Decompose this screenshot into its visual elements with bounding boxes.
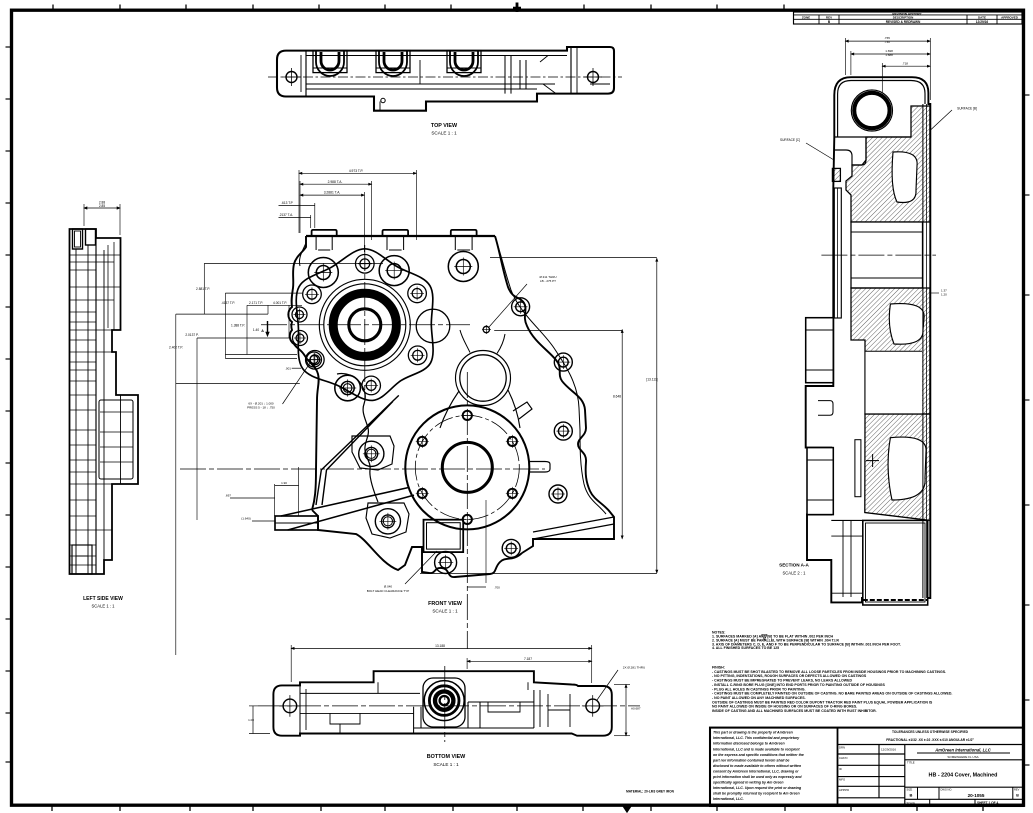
- svg-text:This part or drawing is the pr: This part or drawing is the property of …: [713, 731, 793, 735]
- svg-text:REV: REV: [1014, 788, 1020, 792]
- svg-text:.718: .718: [902, 62, 908, 66]
- svg-text:B: B: [1016, 794, 1019, 798]
- svg-text:12/29/2016: 12/29/2016: [881, 748, 896, 752]
- svg-text:4. ALL FINISHED SURFACES TO BE: 4. ALL FINISHED SURFACES TO BE 125: [712, 646, 779, 650]
- svg-text:[13.111]: [13.111]: [646, 378, 658, 382]
- svg-text:TITLE: TITLE: [907, 761, 915, 765]
- svg-text:4.973 T.P.: 4.973 T.P.: [349, 169, 364, 173]
- svg-text:Ø.040: Ø.040: [384, 584, 393, 588]
- svg-text:International, LLC. This confi: International, LLC. This confidential an…: [713, 736, 800, 740]
- svg-text:8.648: 8.648: [613, 395, 621, 399]
- svg-text:1.20: 1.20: [941, 293, 947, 297]
- svg-text:1.90: 1.90: [281, 481, 287, 485]
- svg-text:HB - 2204 Cover, Machined: HB - 2204 Cover, Machined: [929, 773, 998, 779]
- svg-text:TOP VIEW: TOP VIEW: [431, 123, 458, 129]
- svg-text:1.688: 1.688: [885, 53, 893, 57]
- svg-text:print information shall be use: print information shall be used only as …: [712, 775, 802, 779]
- svg-text:International, LLC.: International, LLC.: [713, 797, 744, 801]
- svg-text:1.40: 1.40: [253, 328, 259, 332]
- svg-text:SCALE 1 : 1: SCALE 1 : 1: [432, 609, 458, 614]
- svg-text:SCALE 2 : 1: SCALE 2 : 1: [782, 571, 806, 576]
- svg-text:REVISED & REDRAWN: REVISED & REDRAWN: [886, 20, 921, 24]
- svg-text:DWG NO.: DWG NO.: [941, 788, 953, 792]
- svg-text:on the express and specific co: on the express and specific conditions t…: [713, 753, 804, 757]
- svg-text:.4137 T.P.: .4137 T.P.: [221, 301, 235, 305]
- svg-text:SCALE 1 : 1: SCALE 1 : 1: [431, 131, 457, 136]
- svg-text:2.171 T.P.: 2.171 T.P.: [249, 301, 263, 305]
- svg-text:20-1055: 20-1055: [968, 793, 985, 798]
- svg-text:2.0137 P.: 2.0137 P.: [185, 333, 198, 337]
- svg-text:TOLERANCES UNLESS OTHERWISE SP: TOLERANCES UNLESS OTHERWISE SPECIFIED: [892, 730, 969, 734]
- svg-text:1.388 T.P.: 1.388 T.P.: [231, 324, 245, 328]
- svg-text:CHK'D: CHK'D: [839, 756, 847, 760]
- svg-text:SECTION A-A: SECTION A-A: [779, 563, 809, 568]
- svg-text:FRACTIONAL ±1/32 .XX ±.02: FRACTIONAL ±1/32 .XX ±.02 .XXX ±.010 ANG…: [886, 738, 974, 742]
- svg-text:SURFACE [B]: SURFACE [B]: [957, 107, 977, 111]
- svg-text:ID: ID: [839, 767, 842, 771]
- svg-text:information disclosed belongs: information disclosed belongs to AmGreen: [713, 742, 785, 746]
- svg-text:ZONE: ZONE: [802, 16, 810, 20]
- svg-text:SHEET 1 OF 4: SHEET 1 OF 4: [977, 801, 998, 805]
- svg-text:.613 T.P: .613 T.P: [281, 201, 293, 205]
- svg-text:BOTTOM VIEW: BOTTOM VIEW: [427, 754, 466, 760]
- svg-text:DESCRIPTION: DESCRIPTION: [893, 16, 914, 20]
- svg-text:AmGreen International, LLC: AmGreen International, LLC: [934, 748, 992, 753]
- svg-text:part nor information contained: part nor information contained herein sh…: [712, 758, 789, 762]
- svg-text:SCALE 1 : 1: SCALE 1 : 1: [433, 762, 459, 767]
- svg-text:2.85: 2.85: [99, 204, 105, 208]
- svg-text:DATE: DATE: [978, 16, 986, 20]
- svg-text:B: B: [910, 793, 913, 798]
- svg-text:7.187: 7.187: [524, 657, 532, 661]
- svg-text:(1.640): (1.640): [241, 517, 251, 521]
- svg-text:International, LLC. Upon reque: International, LLC. Upon request the pri…: [713, 786, 802, 790]
- svg-text:LEFT SIDE VIEW: LEFT SIDE VIEW: [83, 596, 123, 602]
- svg-text:A: A: [261, 329, 264, 333]
- svg-text:APPR'D: APPR'D: [839, 788, 849, 792]
- svg-text:.697: .697: [225, 494, 231, 498]
- svg-text:PRESS 5 - 18 ↓ .750: PRESS 5 - 18 ↓ .750: [247, 406, 275, 410]
- svg-text:SCALE: SCALE: [907, 801, 916, 805]
- svg-text:SURFACE [C]: SURFACE [C]: [780, 138, 800, 142]
- svg-text:specifically agreed in writing: specifically agreed in writing by Am Gre…: [713, 781, 783, 785]
- svg-text:REV: REV: [826, 16, 832, 20]
- svg-text:2.988 T.A.: 2.988 T.A.: [328, 180, 343, 184]
- svg-text:4.001 T.P.: 4.001 T.P.: [273, 301, 287, 305]
- svg-text:LB - 275 PT: LB - 275 PT: [540, 279, 556, 283]
- svg-text:APPROVED: APPROVED: [1001, 16, 1019, 20]
- svg-text:.700: .700: [494, 585, 500, 589]
- svg-text:2.881 T.P.: 2.881 T.P.: [196, 287, 210, 291]
- svg-text:.001: .001: [285, 367, 291, 371]
- svg-text:International, LLC and is made: International, LLC and is made available…: [713, 747, 800, 751]
- svg-text:MATERIAL: 20-LM3 GREY IRON: MATERIAL: 20-LM3 GREY IRON: [626, 790, 675, 794]
- svg-text:consent by AmGreen Internation: consent by AmGreen International, LLC, d…: [713, 769, 799, 773]
- svg-text:MFG: MFG: [839, 778, 845, 782]
- svg-text:shall be promptly returned by: shall be promptly returned by recipient …: [713, 792, 800, 796]
- svg-text:1.00: 1.00: [248, 718, 254, 722]
- svg-text:A0.687: A0.687: [631, 707, 641, 711]
- svg-text:SCALE 1 : 1: SCALE 1 : 1: [91, 604, 115, 609]
- svg-text:.740: .740: [884, 40, 890, 44]
- svg-text:disclosed to made available to: disclosed to made available to others wi…: [713, 764, 801, 768]
- svg-text:12/29/16: 12/29/16: [976, 20, 989, 24]
- svg-text:INSIDE OF CASTING AND ALL MACH: INSIDE OF CASTING AND ALL MACHINED SURFA…: [712, 709, 877, 713]
- svg-text:FRONT VIEW: FRONT VIEW: [428, 601, 463, 607]
- svg-text:BOLT HEAD CLEARANCE TYP: BOLT HEAD CLEARANCE TYP: [367, 589, 410, 593]
- svg-text:13.188: 13.188: [435, 644, 445, 648]
- svg-text:SIZE: SIZE: [907, 788, 913, 792]
- svg-text:3.2881 T.A.: 3.2881 T.A.: [324, 191, 341, 195]
- svg-text:Ø.311 THRU: Ø.311 THRU: [539, 275, 556, 279]
- svg-text:2X Ø.281 THRU: 2X Ø.281 THRU: [623, 665, 645, 669]
- svg-text:DRN: DRN: [839, 746, 845, 750]
- svg-text:2.402 T.P.: 2.402 T.P.: [169, 346, 183, 350]
- svg-text:.2137 T.A.: .2137 T.A.: [279, 213, 293, 217]
- svg-text:SOMEWHERE FL USA: SOMEWHERE FL USA: [947, 755, 978, 759]
